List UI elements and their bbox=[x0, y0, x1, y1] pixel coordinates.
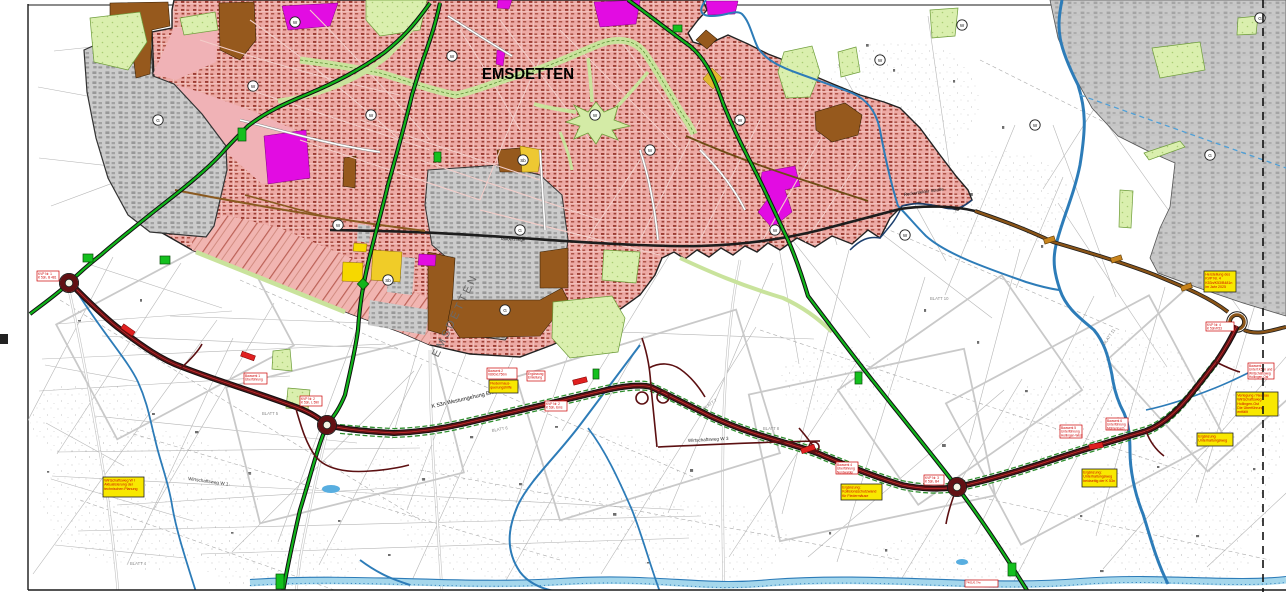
svg-text:G: G bbox=[156, 118, 160, 123]
svg-text:Einleitung: Einleitung bbox=[528, 376, 542, 380]
svg-text:Überführung: Überführung bbox=[245, 378, 263, 382]
svg-text:G: G bbox=[1258, 16, 1262, 21]
svg-text:BLATT 8: BLATT 8 bbox=[763, 426, 780, 431]
svg-text:BLATT 4: BLATT 4 bbox=[130, 561, 147, 566]
svg-text:W: W bbox=[450, 54, 455, 59]
svg-text:G: G bbox=[503, 308, 507, 313]
svg-text:K 53n/K53: K 53n/K53 bbox=[1207, 327, 1222, 331]
svg-text:W: W bbox=[369, 113, 374, 118]
svg-text:K 53n, B 481: K 53n, B 481 bbox=[38, 276, 57, 280]
svg-text:Tauberstiege: Tauberstiege bbox=[500, 236, 526, 242]
svg-text:W: W bbox=[251, 84, 256, 89]
svg-text:querungshilfe: querungshilfe bbox=[490, 386, 512, 390]
svg-text:Nordwalder: Nordwalder bbox=[837, 470, 854, 474]
svg-text:für Fledermäuse: für Fledermäuse bbox=[842, 494, 868, 498]
svg-text:W: W bbox=[878, 58, 883, 63]
svg-text:W: W bbox=[738, 118, 743, 123]
svg-text:Sb: Sb bbox=[520, 158, 526, 163]
svg-text:W: W bbox=[293, 20, 298, 25]
svg-text:V800x1750m: V800x1750m bbox=[488, 373, 507, 377]
svg-text:W: W bbox=[1033, 123, 1038, 128]
svg-text:W: W bbox=[336, 223, 341, 228]
svg-text:technischen Planung: technischen Planung bbox=[104, 487, 137, 491]
svg-text:K 53n, L 590: K 53n, L 590 bbox=[301, 401, 319, 405]
svg-text:W: W bbox=[903, 233, 908, 238]
svg-text:EMSDETTEN: EMSDETTEN bbox=[482, 66, 574, 83]
svg-text:beidseitig der K 53n: beidseitig der K 53n bbox=[1083, 479, 1115, 483]
svg-text:W: W bbox=[593, 113, 598, 118]
svg-text:BLATT 10: BLATT 10 bbox=[930, 296, 949, 301]
svg-text:entfällt: entfällt bbox=[1237, 410, 1248, 414]
svg-text:Unterhaltungsweg: Unterhaltungsweg bbox=[1198, 439, 1227, 443]
svg-text:Hollingen-West: Hollingen-West bbox=[1061, 433, 1083, 437]
svg-text:7401/0.7/w: 7401/0.7/w bbox=[966, 581, 982, 585]
svg-text:Mühlenbach: Mühlenbach bbox=[1107, 426, 1125, 430]
svg-text:W: W bbox=[648, 148, 653, 153]
svg-text:Sb: Sb bbox=[385, 278, 391, 283]
svg-text:BLATT 5: BLATT 5 bbox=[262, 411, 279, 416]
svg-text:W: W bbox=[960, 23, 965, 28]
svg-text:W: W bbox=[773, 228, 778, 233]
svg-text:Hollingen-Ost: Hollingen-Ost bbox=[1249, 375, 1268, 379]
svg-text:K 53n, Ems: K 53n, Ems bbox=[546, 406, 563, 410]
svg-text:K 53n, B4: K 53n, B4 bbox=[925, 480, 939, 484]
svg-text:im Jahr 2025: im Jahr 2025 bbox=[1205, 285, 1226, 289]
svg-text:G: G bbox=[518, 228, 522, 233]
svg-text:G: G bbox=[1208, 153, 1212, 158]
